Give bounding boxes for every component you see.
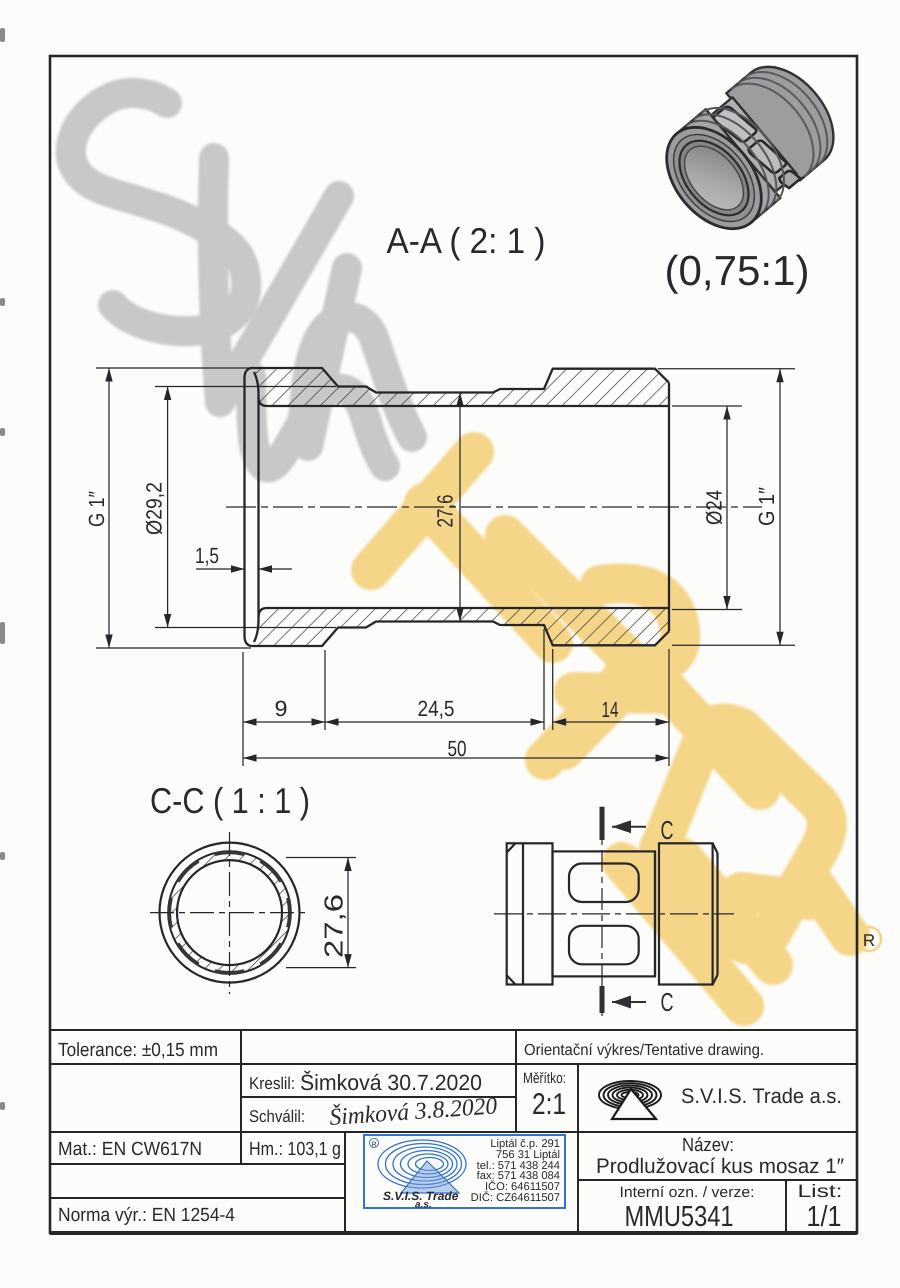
svg-text:Název:: Název: <box>682 1135 734 1156</box>
svg-text:(0,75:1): (0,75:1) <box>665 247 810 294</box>
svg-text:MMU5341: MMU5341 <box>625 1201 734 1233</box>
svg-text:Mat.: EN CW617N: Mat.: EN CW617N <box>58 1139 202 1160</box>
svg-text:Norma výr.: EN 1254-4: Norma výr.: EN 1254-4 <box>58 1205 235 1226</box>
svg-text:Ø24: Ø24 <box>702 490 727 525</box>
svg-text:a.s.: a.s. <box>415 1200 432 1211</box>
svg-text:Tolerance: ±0,15 mm: Tolerance: ±0,15 mm <box>58 1040 218 1061</box>
svg-text:C: C <box>661 987 674 1017</box>
svg-text:R: R <box>371 1142 376 1149</box>
svg-text:C-C ( 1 : 1 ): C-C ( 1 : 1 ) <box>150 780 310 821</box>
svg-text:C: C <box>661 815 674 845</box>
svg-text:2:1: 2:1 <box>532 1088 566 1121</box>
svg-text:R: R <box>863 931 875 950</box>
svg-text:1/1: 1/1 <box>807 1201 842 1233</box>
svg-text:Kreslil:: Kreslil: <box>249 1074 295 1093</box>
svg-text:9: 9 <box>275 696 288 721</box>
svg-text:Ø29,2: Ø29,2 <box>142 482 167 535</box>
svg-text:Schválil:: Schválil: <box>249 1107 305 1126</box>
svg-text:14: 14 <box>602 697 619 722</box>
svg-text:G 1″: G 1″ <box>84 491 109 527</box>
svg-text:S.V.I.S. Trade a.s.: S.V.I.S. Trade a.s. <box>681 1085 842 1108</box>
svg-text:A-A ( 2: 1 ): A-A ( 2: 1 ) <box>387 220 546 261</box>
svg-text:Interní ozn. / verze:: Interní ozn. / verze: <box>620 1184 755 1201</box>
svg-text:Šimková 30.7.2020: Šimková 30.7.2020 <box>300 1070 482 1095</box>
svg-text:Měřítko:: Měřítko: <box>523 1070 566 1087</box>
svg-text:Prodlužovací kus mosaz 1″: Prodlužovací kus mosaz 1″ <box>596 1155 845 1178</box>
svg-text:Hm.: 103,1 g: Hm.: 103,1 g <box>249 1139 341 1160</box>
svg-text:DIČ: CZ64611507: DIČ: CZ64611507 <box>471 1191 560 1204</box>
svg-text:27,6: 27,6 <box>433 495 458 528</box>
svg-text:List:: List: <box>798 1181 843 1201</box>
svg-text:Orientační výkres/Tentative dr: Orientační výkres/Tentative drawing. <box>524 1042 764 1059</box>
svg-text:G 1″: G 1″ <box>754 487 779 526</box>
svg-text:24,5: 24,5 <box>418 696 455 721</box>
svg-text:27,6: 27,6 <box>319 894 349 958</box>
svg-text:1,5: 1,5 <box>195 543 219 568</box>
svg-text:50: 50 <box>448 736 467 761</box>
